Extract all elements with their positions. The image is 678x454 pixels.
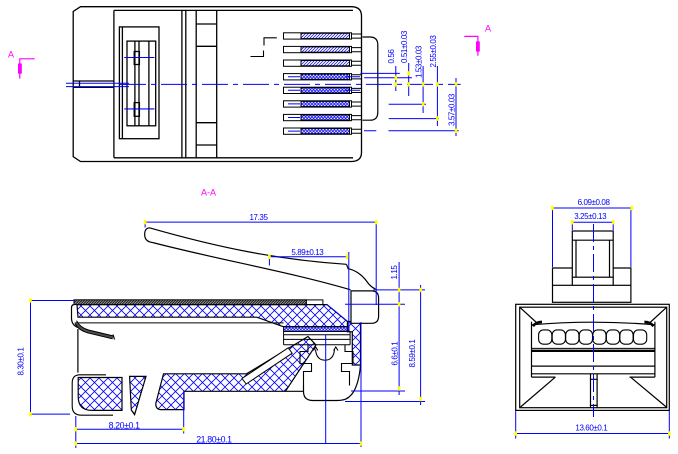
- svg-text:1.53±0.03: 1.53±0.03: [415, 45, 424, 78]
- svg-text:3.25±0.13: 3.25±0.13: [574, 212, 607, 221]
- svg-text:A-A: A-A: [201, 188, 216, 198]
- svg-text:1.15: 1.15: [390, 265, 399, 280]
- svg-text:21.80±0.1: 21.80±0.1: [196, 434, 232, 444]
- svg-text:13.60±0.1: 13.60±0.1: [575, 424, 608, 433]
- svg-text:0.51±0.03: 0.51±0.03: [400, 30, 409, 63]
- svg-text:17.35: 17.35: [250, 213, 269, 222]
- svg-text:2.55±0.03: 2.55±0.03: [429, 35, 438, 68]
- svg-text:6.09±0.08: 6.09±0.08: [578, 198, 611, 207]
- svg-text:6.6±0.1: 6.6±0.1: [391, 341, 400, 366]
- svg-text:5.89±0.13: 5.89±0.13: [291, 248, 324, 257]
- svg-text:0.56: 0.56: [387, 49, 396, 64]
- svg-text:8.30±0.1: 8.30±0.1: [17, 347, 26, 376]
- svg-text:8.20±0.1: 8.20±0.1: [109, 420, 140, 430]
- svg-text:A: A: [8, 50, 14, 60]
- svg-text:8.59±0.1: 8.59±0.1: [408, 339, 417, 368]
- svg-text:3.57±0.03: 3.57±0.03: [447, 93, 456, 126]
- svg-text:A: A: [485, 24, 491, 34]
